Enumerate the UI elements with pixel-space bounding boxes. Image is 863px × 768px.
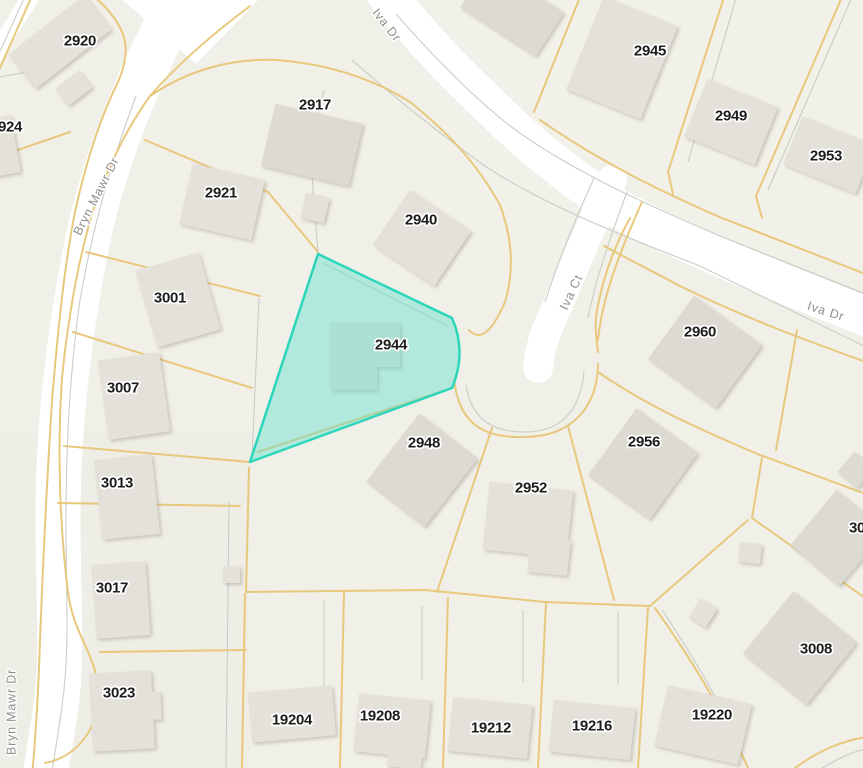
parcel-map: Iva DrIva DrIva CtBryn Mawr DrBryn Mawr …	[0, 0, 863, 768]
parcel-label-19216[interactable]: 19216	[572, 717, 612, 734]
building-shed-b	[738, 542, 762, 564]
parcel-label-2952[interactable]: 2952	[515, 479, 547, 496]
parcel-label-19208[interactable]: 19208	[360, 707, 400, 724]
parcel-label-2960[interactable]: 2960	[684, 323, 716, 340]
parcel-label-3023[interactable]: 3023	[103, 684, 135, 701]
building-shed-a	[223, 566, 240, 583]
parcel-label-2956[interactable]: 2956	[628, 433, 660, 450]
parcel-label-2948[interactable]: 2948	[408, 434, 440, 451]
parcel-label-2949[interactable]: 2949	[715, 107, 747, 124]
parcel-label-3008[interactable]: 3008	[800, 640, 832, 657]
parcel-label-2945[interactable]: 2945	[634, 42, 666, 59]
parcel-label-2953[interactable]: 2953	[810, 147, 842, 164]
parcel-label-2917[interactable]: 2917	[299, 96, 331, 113]
parcel-label-3013[interactable]: 3013	[101, 474, 133, 491]
parcel-label-2920[interactable]: 2920	[64, 32, 96, 49]
parcel-label-2940[interactable]: 2940	[405, 211, 437, 228]
building-3023-ext	[138, 691, 161, 720]
building-19208-ext	[387, 744, 423, 768]
parcel-label-924[interactable]: 924	[0, 118, 23, 135]
street-label-bryn-mawr-lower: Bryn Mawr Dr	[4, 669, 18, 755]
building-3013	[94, 454, 160, 540]
parcel-label-2944[interactable]: 2944	[375, 336, 408, 353]
parcel-label-3017[interactable]: 3017	[96, 579, 128, 596]
parcel-label-3007[interactable]: 3007	[107, 379, 139, 396]
map-canvas: Iva DrIva DrIva CtBryn Mawr DrBryn Mawr …	[0, 0, 863, 768]
parcel-label-2921[interactable]: 2921	[205, 184, 237, 201]
building-2952-ext	[527, 536, 571, 576]
parcel-label-19204[interactable]: 19204	[272, 711, 313, 728]
parcel-label-30[interactable]: 30	[849, 519, 863, 536]
building-3017	[91, 561, 150, 639]
parcel-label-19220[interactable]: 19220	[692, 706, 732, 723]
parcel-label-3001[interactable]: 3001	[154, 289, 186, 306]
parcel-label-19212[interactable]: 19212	[471, 719, 511, 736]
